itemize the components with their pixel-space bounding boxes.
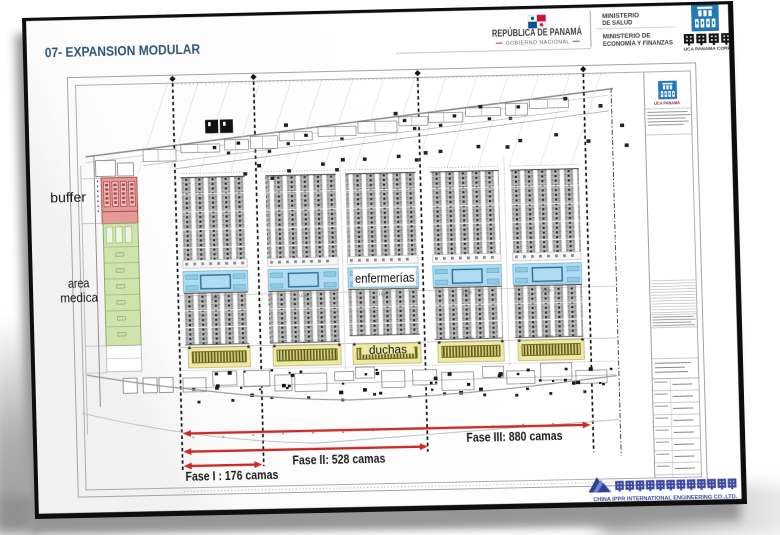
svg-text:MINISTERIO: MINISTERIO (602, 12, 639, 20)
svg-text:duchas: duchas (369, 344, 408, 357)
svg-text:enfermerías: enfermerías (355, 271, 415, 286)
svg-text:REPÚBLICA DE PANAMÁ: REPÚBLICA DE PANAMÁ (492, 26, 582, 40)
svg-text:13.00: 13.00 (545, 335, 554, 339)
svg-text:15.00: 15.00 (542, 288, 553, 293)
svg-text:DE SALUD: DE SALUD (602, 20, 633, 28)
svg-text:13.00: 13.00 (301, 340, 310, 344)
svg-text:Fase I : 176 camas: Fase I : 176 camas (185, 468, 278, 484)
svg-text:13.00: 13.00 (213, 342, 222, 346)
svg-text:15.00: 15.00 (298, 293, 309, 298)
svg-text:Fase III: 880 camas: Fase III: 880 camas (466, 429, 563, 445)
svg-text:15.00: 15.00 (378, 291, 389, 296)
svg-text:medica: medica (60, 289, 99, 305)
svg-text:ECONOMÍA Y FINANZAS: ECONOMÍA Y FINANZAS (603, 38, 673, 48)
svg-text:area: area (68, 275, 91, 291)
svg-text:15.00: 15.00 (211, 295, 222, 300)
svg-text:13.00: 13.00 (465, 336, 474, 340)
svg-text:15.00: 15.00 (462, 289, 473, 294)
svg-text:Fase II: 528 camas: Fase II: 528 camas (292, 451, 385, 467)
svg-text:buffer: buffer (50, 190, 87, 206)
svg-text:UCA PANAMA: UCA PANAMA (654, 100, 681, 106)
